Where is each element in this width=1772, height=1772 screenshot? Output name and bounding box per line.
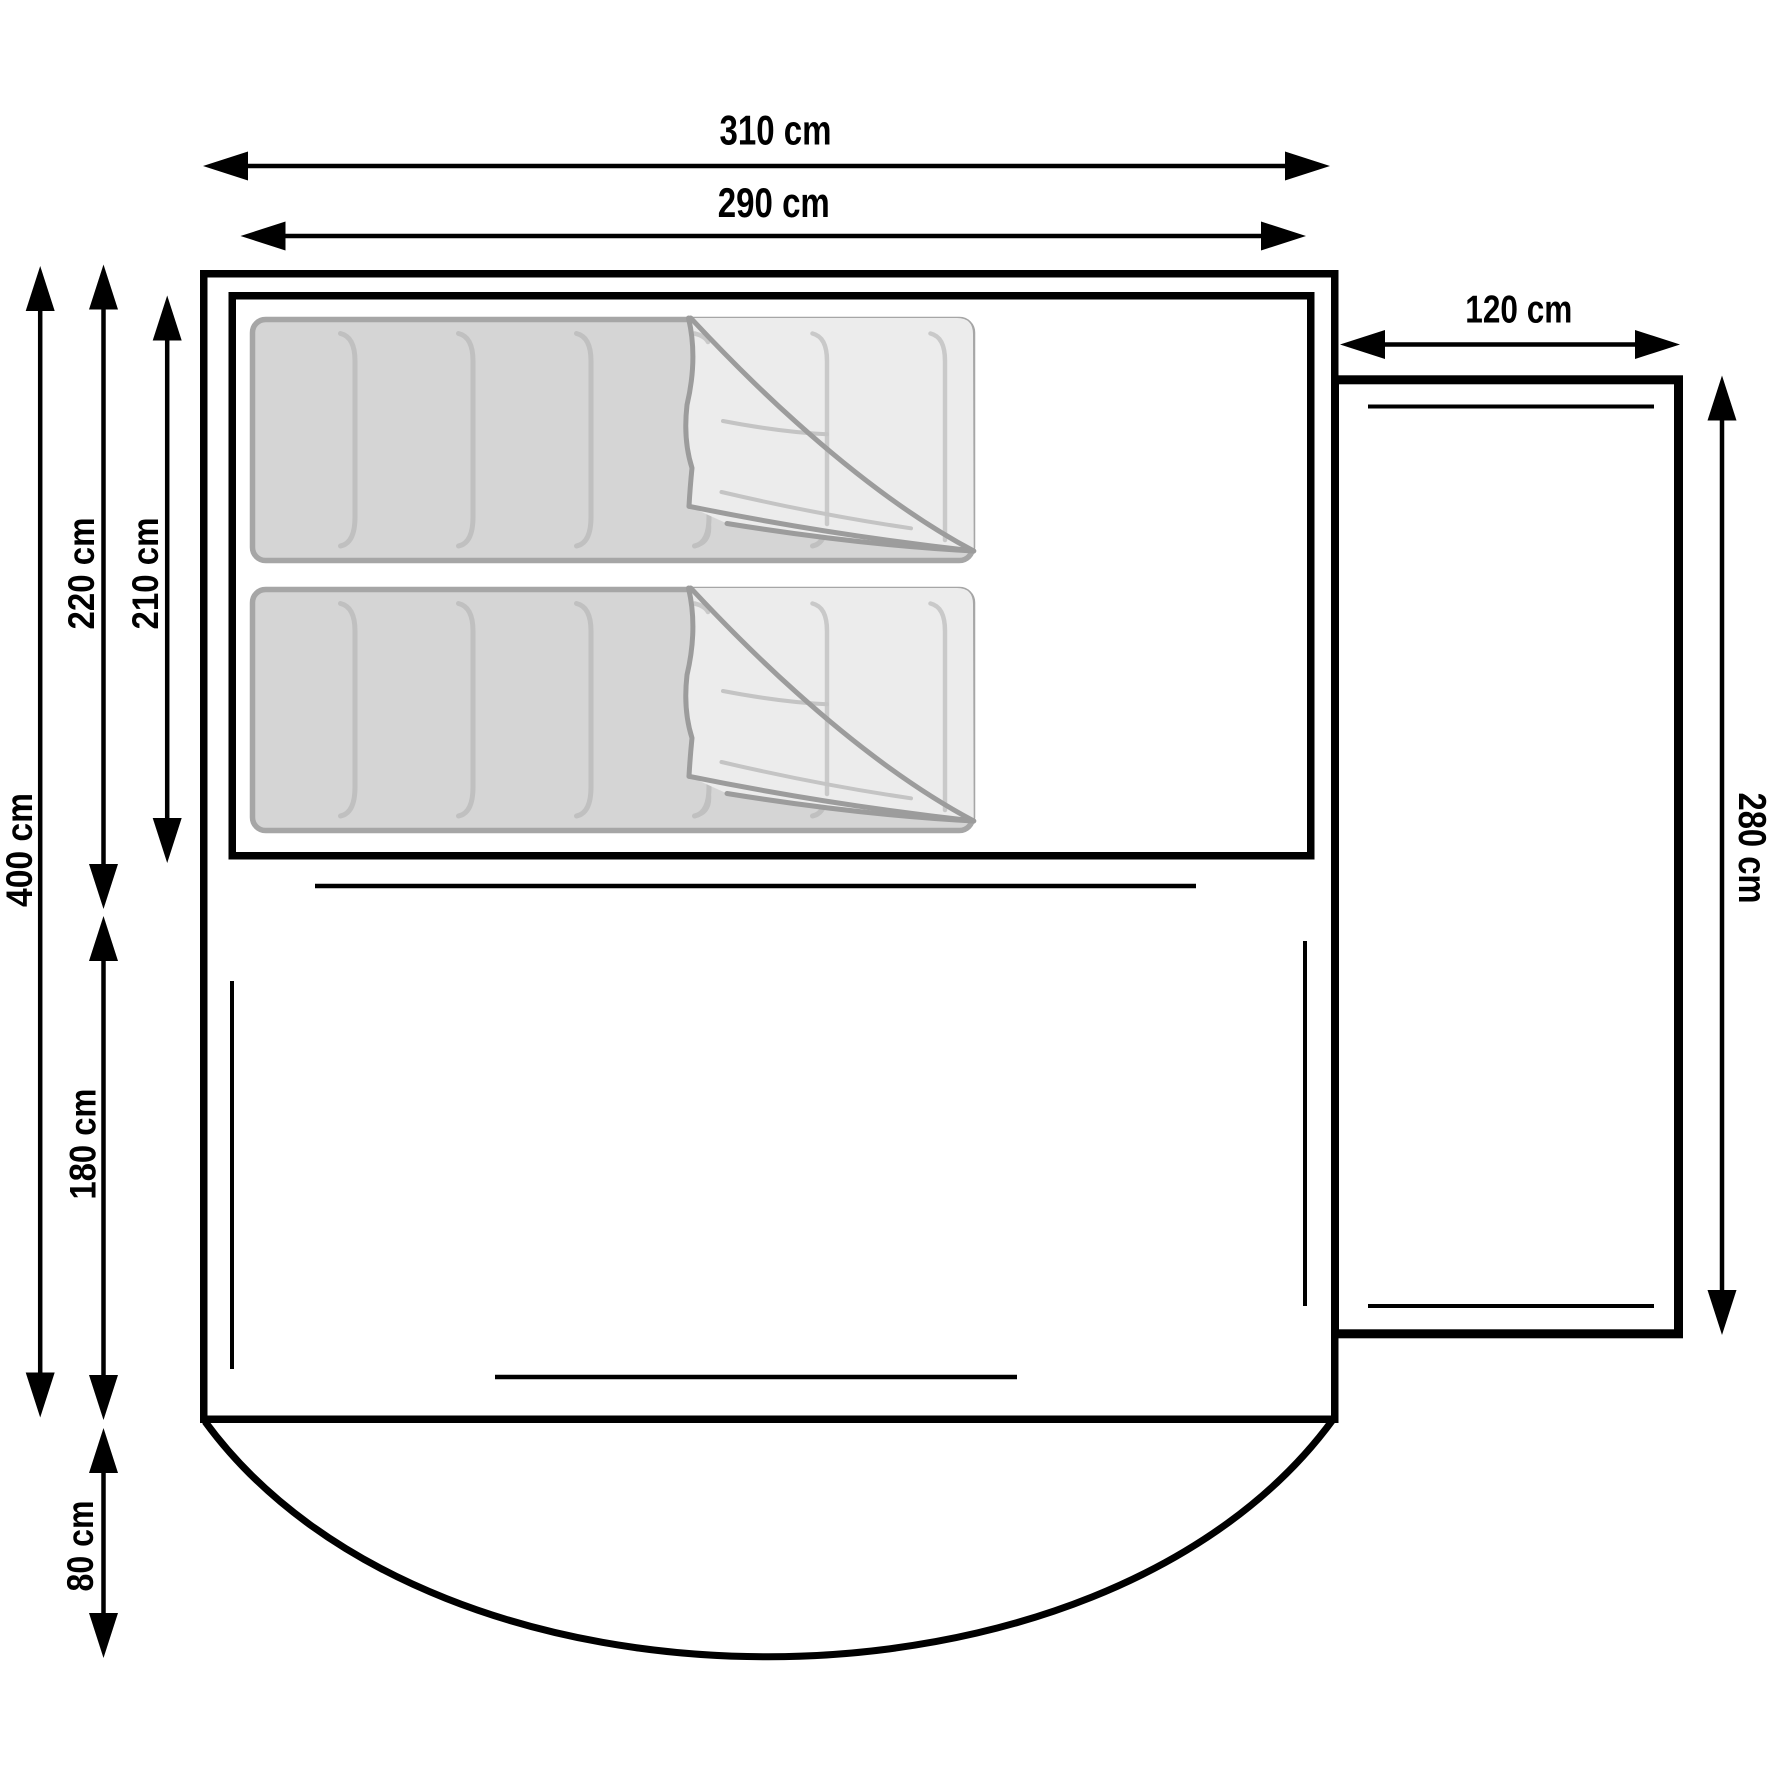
svg-text:400 cm: 400 cm	[0, 793, 40, 907]
svg-text:80 cm: 80 cm	[60, 1501, 101, 1592]
svg-text:220 cm: 220 cm	[61, 518, 102, 630]
svg-text:210 cm: 210 cm	[125, 518, 166, 630]
svg-text:120 cm: 120 cm	[1465, 289, 1572, 332]
svg-text:280 cm: 280 cm	[1730, 793, 1772, 904]
svg-text:290 cm: 290 cm	[718, 179, 830, 226]
svg-text:180 cm: 180 cm	[63, 1089, 104, 1200]
svg-text:310 cm: 310 cm	[720, 107, 832, 154]
